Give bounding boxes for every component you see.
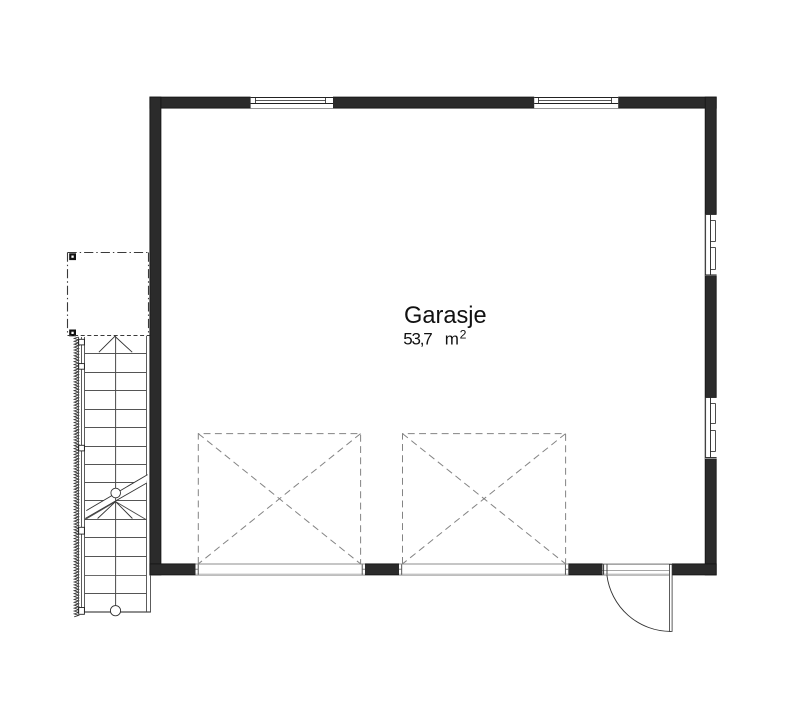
svg-text:2: 2 [460, 327, 467, 341]
svg-text:m: m [445, 329, 459, 348]
svg-text:53,7: 53,7 [403, 329, 432, 348]
svg-text:Garasje: Garasje [404, 303, 487, 329]
